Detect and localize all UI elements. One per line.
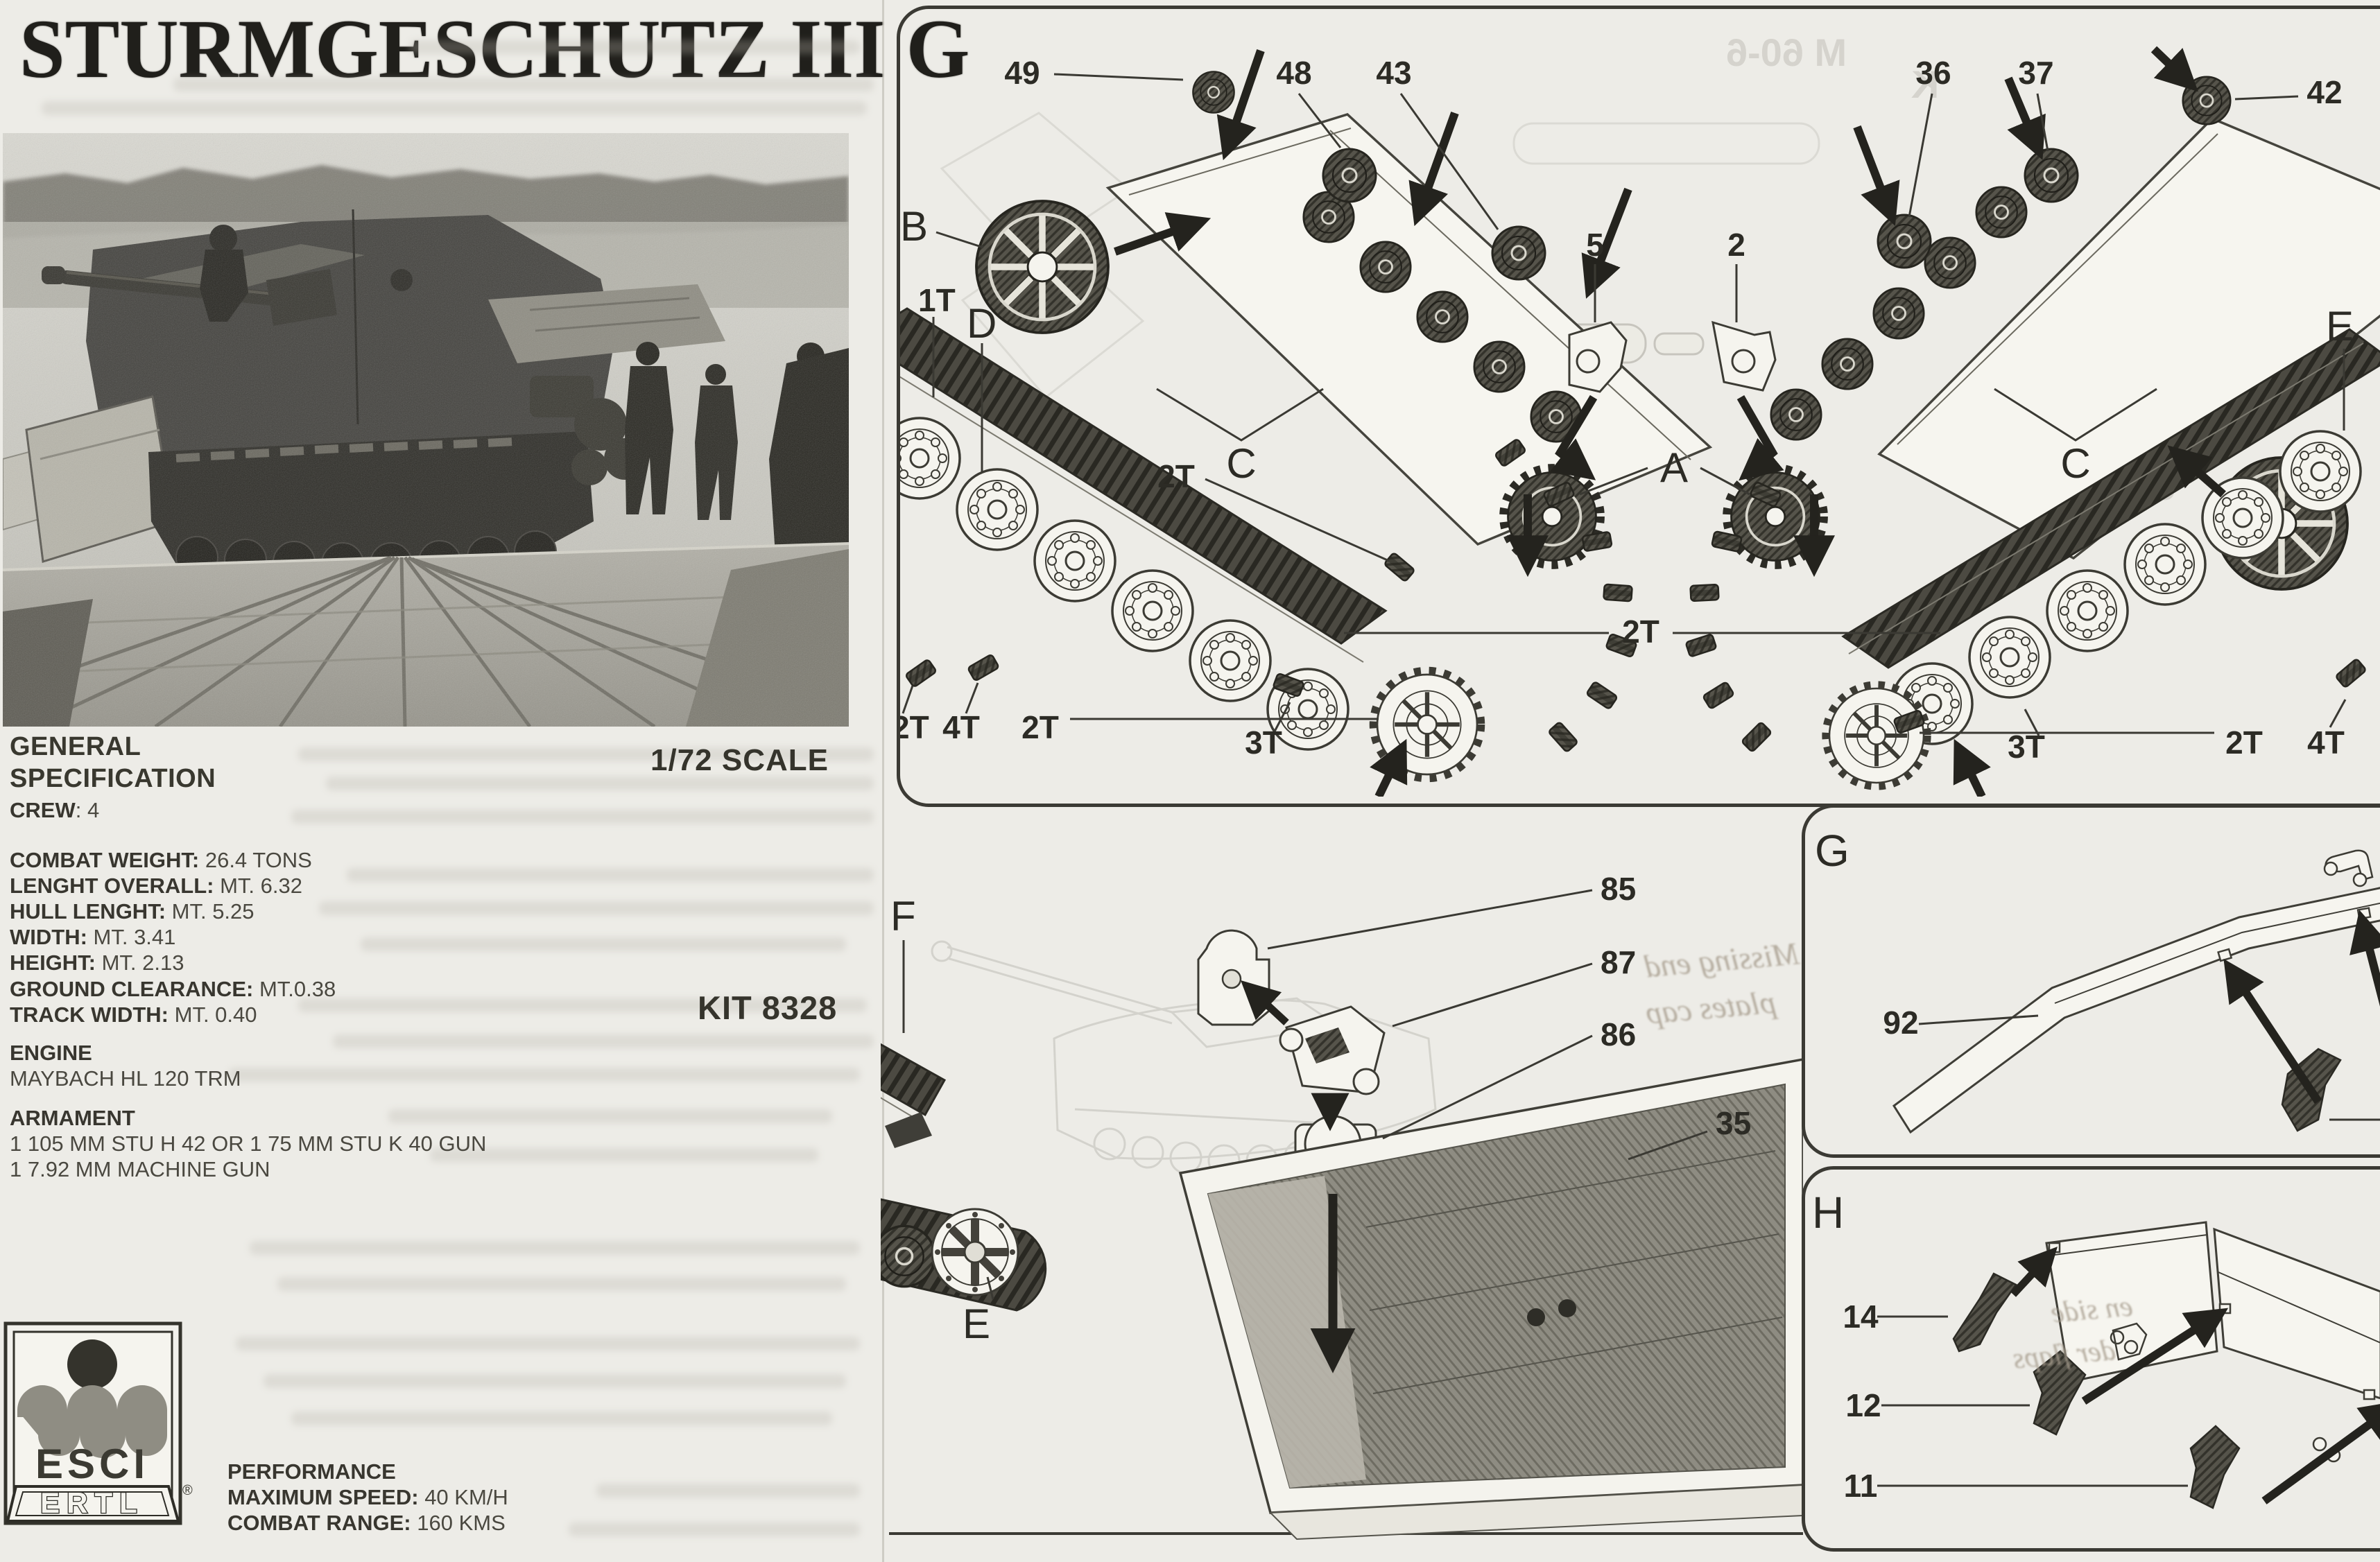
spec-heading: GENERAL SPECIFICATION (10, 731, 216, 795)
sprocket-a-right (1727, 468, 1824, 565)
label-3t: 3T (1245, 724, 1282, 761)
track-wedge (885, 1112, 932, 1148)
armament-block: ARMAMENT 1 105 MM STU H 42 OR 1 75 MM ST… (10, 1105, 486, 1182)
bleed-line (596, 1484, 860, 1498)
engine-value: MAYBACH HL 120 TRM (10, 1066, 241, 1091)
handwritten-note: en side der flaps (2008, 1285, 2138, 1380)
bracket-11 (2191, 1426, 2239, 1508)
label-87: 87 (1601, 944, 1636, 980)
panel-g-diagram: G 92 (1805, 808, 2380, 1147)
bleed-line (326, 776, 874, 790)
label-14: 14 (1843, 1299, 1879, 1335)
label-e-mid: E (963, 1301, 990, 1347)
engine-block: ENGINE MAYBACH HL 120 TRM (10, 1040, 241, 1091)
hull-left-group (900, 71, 1824, 778)
kit-number: KIT 8328 (698, 989, 837, 1027)
bleed-line (291, 1412, 832, 1425)
sun-icon (67, 1339, 117, 1389)
hull-right-group (1686, 77, 2380, 786)
part-37-wheel (2025, 149, 2078, 202)
label-c-right: C (2060, 440, 2090, 487)
tank-photo (3, 133, 849, 727)
spec-row: COMBAT WEIGHT: 26.4 TONS (10, 847, 312, 873)
bleed-line (569, 1522, 860, 1536)
handwritten-note: Missing end plates cap (1640, 930, 1806, 1036)
label-86: 86 (1601, 1016, 1636, 1052)
registered-mark: ® (182, 1483, 193, 1498)
label-e-top: E (2326, 303, 2354, 349)
label-2: 2 (1727, 227, 1745, 263)
spec-row: COMBAT RANGE: 160 KMS (227, 1510, 508, 1536)
clearance-rows: GROUND CLEARANCE: MT.0.38 TRACK WIDTH: M… (10, 976, 336, 1027)
label-f: F (890, 893, 916, 939)
instruction-sheet: STURMGESCHUTZ III G (0, 0, 2380, 1562)
label-43: 43 (1376, 55, 1411, 91)
part-43-wheel (1492, 227, 1545, 279)
armament-line: 1 105 MM STU H 42 OR 1 75 MM STU K 40 GU… (10, 1131, 486, 1156)
label-35: 35 (1716, 1105, 1751, 1141)
bleed-line (291, 810, 874, 824)
bleed-line (42, 101, 867, 115)
label-b: B (900, 203, 928, 250)
label-d: D (967, 300, 997, 347)
label-2t: 2T (1021, 709, 1059, 745)
track-assembly-diagram: M 60-6 K 82 34 32 (900, 9, 2380, 797)
label-3t: 3T (2008, 729, 2045, 765)
label-4t: 4T (942, 709, 980, 745)
hull-interior-diagram: F 85 87 86 35 E (881, 783, 1803, 1546)
clip-part (2325, 851, 2372, 886)
crew-row: CREW: 4 (10, 797, 99, 823)
bleed-line (173, 78, 874, 92)
label-g: G (1815, 826, 1849, 876)
label-a: A (1660, 444, 1688, 491)
armament-heading: ARMAMENT (10, 1106, 135, 1130)
esci-ertl-logo: ESCI ERTL ® (3, 1321, 198, 1529)
part-87-breech (1280, 1007, 1384, 1094)
part-36-wheel (1878, 215, 1931, 268)
label-42: 42 (2306, 74, 2342, 110)
scale-label: 1/72 SCALE (650, 743, 829, 778)
label-2t: 2T (1157, 458, 1195, 494)
brand-ertl: ERTL (40, 1486, 144, 1519)
label-48: 48 (1276, 55, 1311, 91)
bleed-line (277, 1277, 846, 1291)
bleed-line (361, 937, 846, 951)
crew-value: : 4 (76, 798, 99, 822)
performance-heading: PERFORMANCE (227, 1459, 396, 1484)
bleed-text: M 60-6 (1726, 31, 1847, 74)
bleed-line (319, 901, 874, 915)
spec-row: TRACK WIDTH: MT. 0.40 (10, 1002, 336, 1027)
dimension-rows: COMBAT WEIGHT: 26.4 TONS LENGHT OVERALL:… (10, 847, 312, 975)
bleed-line (333, 1034, 874, 1048)
bracket-14 (1954, 1274, 2016, 1351)
spec-heading-line2: SPECIFICATION (10, 763, 216, 795)
spec-row: WIDTH: MT. 3.41 (10, 924, 312, 950)
label-49: 49 (1004, 55, 1040, 91)
part-2-mount (1713, 322, 1775, 390)
fender-plate-right (2214, 1229, 2380, 1399)
label-12: 12 (1845, 1387, 1881, 1423)
crew-label: CREW (10, 798, 76, 822)
label-37: 37 (2018, 55, 2053, 91)
spec-row: GROUND CLEARANCE: MT.0.38 (10, 976, 336, 1002)
engine-heading: ENGINE (10, 1041, 92, 1065)
assembly-arrows (2231, 923, 2380, 1102)
part-49-roller (1193, 71, 1234, 112)
hull-tub (1180, 1059, 1803, 1539)
armament-line: 1 7.92 MM MACHINE GUN (10, 1157, 270, 1181)
drive-sprocket-left (1374, 671, 1481, 779)
spec-row: LENGHT OVERALL: MT. 6.32 (10, 873, 312, 899)
spec-row: HEIGHT: MT. 2.13 (10, 950, 312, 975)
bleed-line (236, 1337, 860, 1351)
spec-row: MAXIMUM SPEED: 40 KM/H (227, 1484, 508, 1510)
bleed-line (347, 868, 874, 882)
label-4t: 4T (2307, 724, 2345, 761)
label-5: 5 (1586, 227, 1604, 263)
label-1t: 1T (918, 282, 956, 318)
label-85: 85 (1601, 871, 1636, 907)
bleed-line (264, 1374, 846, 1388)
spec-row: HULL LENGHT: MT. 5.25 (10, 899, 312, 924)
bleed-line (229, 1068, 860, 1082)
label-11: 11 (1844, 1468, 1878, 1504)
label-36: 36 (1915, 55, 1951, 91)
label-92: 92 (1883, 1005, 1918, 1041)
bleed-line (250, 1241, 860, 1255)
part-42-wheel (2183, 77, 2230, 124)
performance-block: PERFORMANCE MAXIMUM SPEED: 40 KM/H COMBA… (227, 1459, 508, 1536)
spec-heading-line1: GENERAL (10, 731, 216, 763)
label-2t: 2T (2225, 724, 2263, 761)
bleed-line (409, 40, 860, 54)
label-2t: 2T (1622, 614, 1659, 650)
label-h: H (1812, 1188, 1844, 1238)
label-2t: 2T (900, 709, 929, 745)
assembled-track-unit (881, 1194, 1046, 1310)
bleed-line (430, 1148, 818, 1162)
brand-esci: ESCI (35, 1441, 149, 1487)
part-48-wheel (1323, 149, 1376, 202)
label-c-left: C (1226, 440, 1256, 487)
